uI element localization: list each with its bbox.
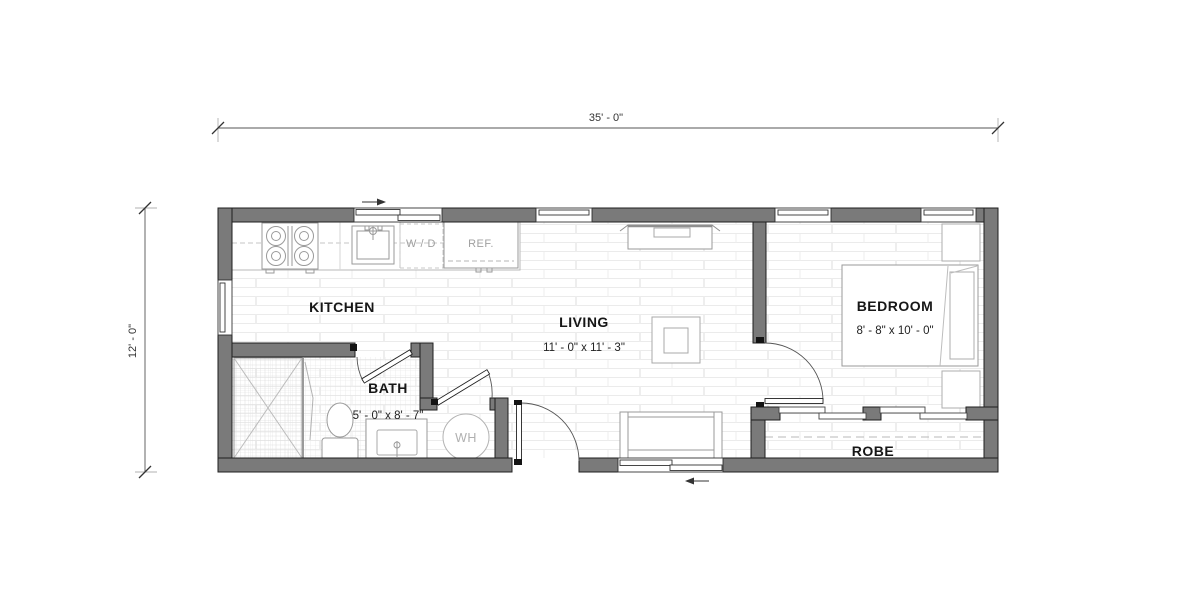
water-heater-label: WH (455, 431, 477, 445)
dimension-top: 35' - 0" (212, 112, 1004, 142)
bedroom-size-label: 8' - 8" x 10' - 0" (856, 325, 933, 337)
robe-label: ROBE (852, 443, 894, 459)
nightstand-bottom-icon (942, 371, 980, 408)
kitchen-side-window (218, 280, 232, 335)
overall-width-dimension: 35' - 0" (589, 112, 623, 124)
bedroom-label: BEDROOM (857, 298, 934, 314)
dimension-left: 12' - 0" (127, 202, 157, 478)
refrigerator-label: REF. (468, 238, 494, 250)
kitchen-label: KITCHEN (309, 299, 375, 315)
bath-label: BATH (368, 380, 408, 396)
sofa-icon (620, 412, 722, 462)
bed-icon (842, 265, 978, 366)
nightstand-top-icon (942, 224, 980, 261)
tv-unit-icon (620, 225, 720, 249)
vanity-sink-icon (366, 419, 427, 460)
shower-icon (234, 358, 313, 458)
bath-door-jamb (411, 343, 420, 357)
coffee-table-icon (652, 317, 700, 363)
window-slide-arrow-right-icon (362, 199, 386, 206)
bedroom-window-right (921, 208, 976, 222)
floor-plan-canvas: 35' - 0" 12' - 0" KITCHEN LIVING 11' - 0… (0, 0, 1200, 603)
floor-plan-drawing: 35' - 0" 12' - 0" KITCHEN LIVING 11' - 0… (0, 0, 1200, 603)
washer-dryer-label: W / D (406, 238, 436, 250)
robe-front-stub-left (751, 407, 780, 420)
bath-right-wall (420, 343, 433, 400)
bath-size-label: 5' - 0" x 8' - 7" (353, 410, 424, 422)
living-size-label: 11' - 0" x 11' - 3" (543, 342, 625, 354)
kitchen-window (536, 208, 592, 222)
overall-height-dimension: 12' - 0" (127, 324, 139, 358)
robe-front-stub-right (966, 407, 998, 420)
kitchen-sink-icon (352, 226, 394, 264)
bedroom-window-left (775, 208, 831, 222)
living-sliding-window (618, 458, 723, 472)
kitchen-sliding-window (354, 208, 442, 222)
living-label: LIVING (559, 314, 609, 330)
bath-top-wall (232, 343, 355, 357)
stove-icon (262, 223, 318, 273)
window-slide-arrow-left-icon (685, 478, 709, 485)
wh-right-wall (495, 398, 508, 458)
divider-wall (753, 222, 766, 343)
